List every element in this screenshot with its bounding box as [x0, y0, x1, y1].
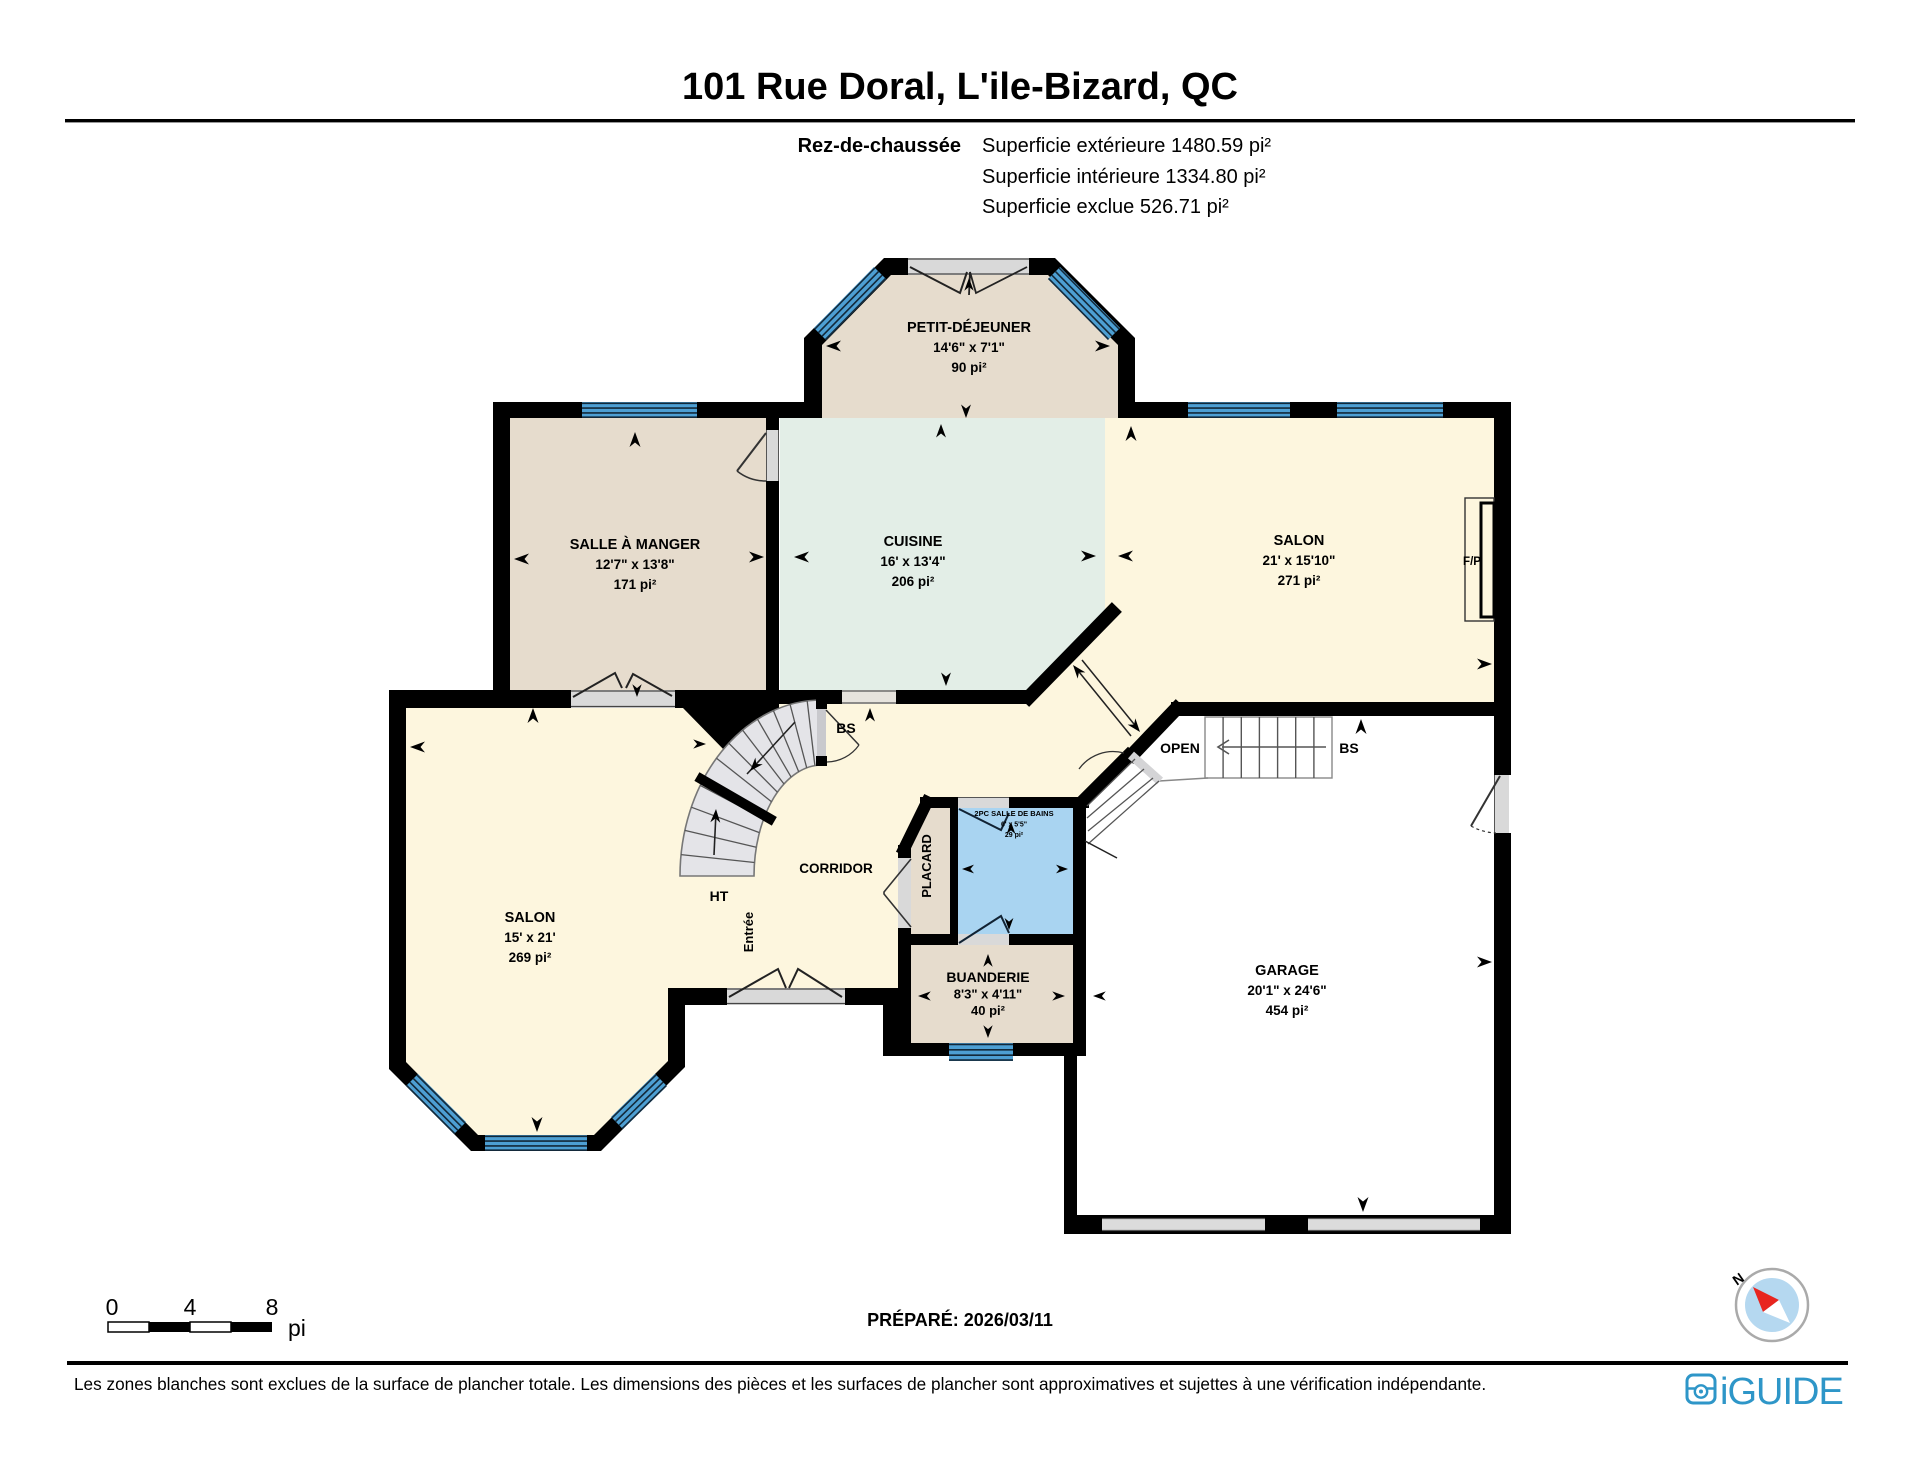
svg-text:BS: BS — [1339, 740, 1358, 756]
svg-text:PLACARD: PLACARD — [919, 834, 934, 898]
svg-text:SALON: SALON — [1274, 533, 1325, 549]
svg-text:14'6" x 7'1": 14'6" x 7'1" — [933, 340, 1005, 355]
svg-text:8'3" x 4'11": 8'3" x 4'11" — [954, 987, 1022, 1002]
svg-text:pi: pi — [288, 1315, 306, 1341]
svg-text:Superficie extérieure 1480.59: Superficie extérieure 1480.59 pi² — [982, 135, 1271, 157]
svg-text:CUISINE: CUISINE — [884, 534, 943, 550]
svg-text:GARAGE: GARAGE — [1255, 963, 1319, 979]
svg-text:271 pi²: 271 pi² — [1278, 573, 1321, 588]
svg-text:2PC SALLE DE BAINS: 2PC SALLE DE BAINS — [974, 809, 1053, 818]
svg-text:F/P: F/P — [1463, 556, 1481, 568]
svg-text:BS: BS — [836, 720, 855, 736]
svg-text:PETIT-DÉJEUNER: PETIT-DÉJEUNER — [907, 319, 1032, 336]
svg-text:Rez-de-chaussée: Rez-de-chaussée — [798, 135, 961, 157]
svg-text:BUANDERIE: BUANDERIE — [946, 969, 1029, 985]
svg-text:12'7" x 13'8": 12'7" x 13'8" — [595, 557, 674, 572]
svg-text:Superficie intérieure 1334.80: Superficie intérieure 1334.80 pi² — [982, 166, 1266, 188]
svg-text:OPEN: OPEN — [1160, 740, 1200, 756]
svg-text:8: 8 — [266, 1294, 279, 1320]
svg-text:SALON: SALON — [505, 910, 556, 926]
svg-text:29 pi²: 29 pi² — [1005, 832, 1024, 839]
svg-text:SALLE À MANGER: SALLE À MANGER — [570, 536, 701, 553]
svg-text:21' x 15'10": 21' x 15'10" — [1263, 553, 1336, 568]
svg-text:206 pi²: 206 pi² — [892, 574, 935, 589]
svg-text:269 pi²: 269 pi² — [509, 950, 552, 965]
svg-text:454 pi²: 454 pi² — [1266, 1003, 1309, 1018]
svg-text:6' x 5'5": 6' x 5'5" — [1001, 822, 1027, 829]
svg-text:20'1" x 24'6": 20'1" x 24'6" — [1247, 983, 1326, 998]
svg-text:16' x 13'4": 16' x 13'4" — [880, 554, 945, 569]
svg-text:Entrée: Entrée — [741, 912, 756, 952]
svg-text:CORRIDOR: CORRIDOR — [799, 861, 873, 876]
svg-text:40 pi²: 40 pi² — [971, 1003, 1006, 1018]
svg-text:iGUIDE: iGUIDE — [1720, 1371, 1843, 1413]
svg-text:Les zones blanches sont exclue: Les zones blanches sont exclues de la su… — [74, 1374, 1486, 1394]
svg-text:4: 4 — [184, 1294, 197, 1320]
svg-text:171 pi²: 171 pi² — [614, 577, 657, 592]
svg-text:HT: HT — [710, 888, 729, 904]
svg-text:Superficie exclue 526.71 pi²: Superficie exclue 526.71 pi² — [982, 196, 1229, 218]
svg-text:90 pi²: 90 pi² — [951, 360, 987, 375]
svg-text:PRÉPARÉ: 2026/03/11: PRÉPARÉ: 2026/03/11 — [867, 1309, 1053, 1330]
svg-text:0: 0 — [106, 1294, 119, 1320]
svg-text:15' x 21': 15' x 21' — [504, 930, 555, 945]
svg-text:101 Rue Doral, L'ile-Bizard, Q: 101 Rue Doral, L'ile-Bizard, QC — [682, 66, 1238, 108]
